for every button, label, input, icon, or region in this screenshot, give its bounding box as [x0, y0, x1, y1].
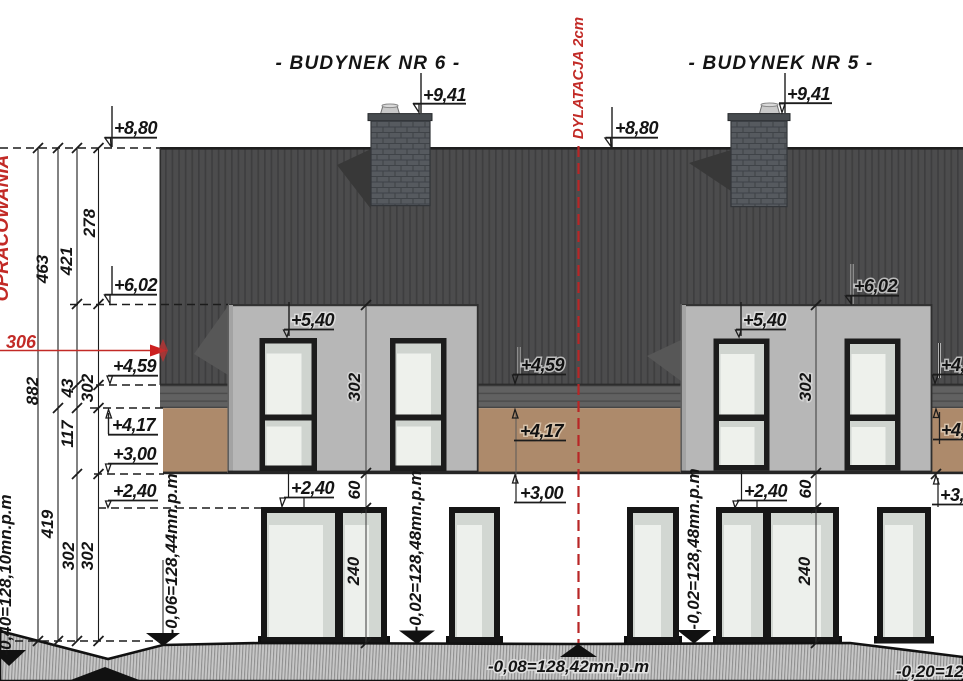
svg-text:117: 117 — [58, 419, 77, 448]
svg-text:DYLATACJA 2cm: DYLATACJA 2cm — [570, 17, 587, 139]
svg-text:419: 419 — [38, 509, 57, 539]
svg-text:+5,40: +5,40 — [743, 310, 787, 330]
svg-text:-0,08=128,42mn.p.m: -0,08=128,42mn.p.m — [488, 657, 649, 676]
svg-text:306: 306 — [6, 332, 37, 352]
svg-text:+4,59: +4,59 — [521, 355, 565, 375]
svg-text:302: 302 — [345, 372, 364, 401]
svg-text:+9,41: +9,41 — [423, 85, 467, 105]
svg-text:421: 421 — [57, 247, 76, 276]
svg-text:OPRACOWANIA: OPRACOWANIA — [0, 155, 13, 302]
svg-text:302: 302 — [59, 541, 78, 570]
svg-text:240: 240 — [795, 556, 814, 586]
svg-text:+4,17: +4,17 — [112, 415, 157, 435]
svg-text:-0,20=12: -0,20=12 — [896, 662, 963, 681]
svg-text:+4,59: +4,59 — [113, 356, 157, 376]
svg-text:-0,02=128,48mn.p.m: -0,02=128,48mn.p.m — [684, 468, 703, 629]
svg-text:+8,80: +8,80 — [615, 118, 659, 138]
svg-text:+2,40: +2,40 — [744, 481, 788, 501]
svg-text:240: 240 — [344, 556, 363, 586]
svg-text:+2,40: +2,40 — [113, 481, 157, 501]
svg-text:+6,02: +6,02 — [114, 275, 158, 295]
svg-text:-0,02=128,48mn.p.m: -0,02=128,48mn.p.m — [406, 470, 425, 631]
svg-text:302: 302 — [78, 541, 97, 570]
svg-text:+2,40: +2,40 — [291, 478, 335, 498]
svg-text:60: 60 — [345, 480, 364, 499]
svg-text:+9,41: +9,41 — [787, 84, 831, 104]
svg-text:+6,02: +6,02 — [854, 276, 898, 296]
svg-text:278: 278 — [80, 208, 99, 238]
svg-text:60: 60 — [796, 479, 815, 498]
svg-text:302: 302 — [78, 373, 97, 402]
svg-text:302: 302 — [796, 372, 815, 401]
svg-text:+4,17: +4,17 — [520, 421, 565, 441]
svg-text:+5,40: +5,40 — [291, 310, 335, 330]
svg-text:+4,: +4, — [941, 355, 963, 375]
svg-text:+3,: +3, — [940, 485, 963, 505]
svg-text:+3,00: +3,00 — [520, 483, 564, 503]
svg-text:-0,40=128,10mn.p.m: -0,40=128,10mn.p.m — [0, 494, 15, 655]
svg-text:+4,: +4, — [941, 420, 963, 440]
svg-text:- BUDYNEK NR 6 -: - BUDYNEK NR 6 - — [276, 53, 461, 74]
svg-text:43: 43 — [58, 378, 77, 398]
svg-text:+8,80: +8,80 — [114, 118, 158, 138]
svg-text:+3,00: +3,00 — [113, 444, 157, 464]
svg-text:882: 882 — [23, 376, 42, 405]
svg-text:-0,06=128,44mn.p.m: -0,06=128,44mn.p.m — [162, 473, 181, 634]
svg-text:- BUDYNEK NR 5 -: - BUDYNEK NR 5 - — [689, 53, 874, 74]
svg-text:463: 463 — [33, 254, 52, 284]
